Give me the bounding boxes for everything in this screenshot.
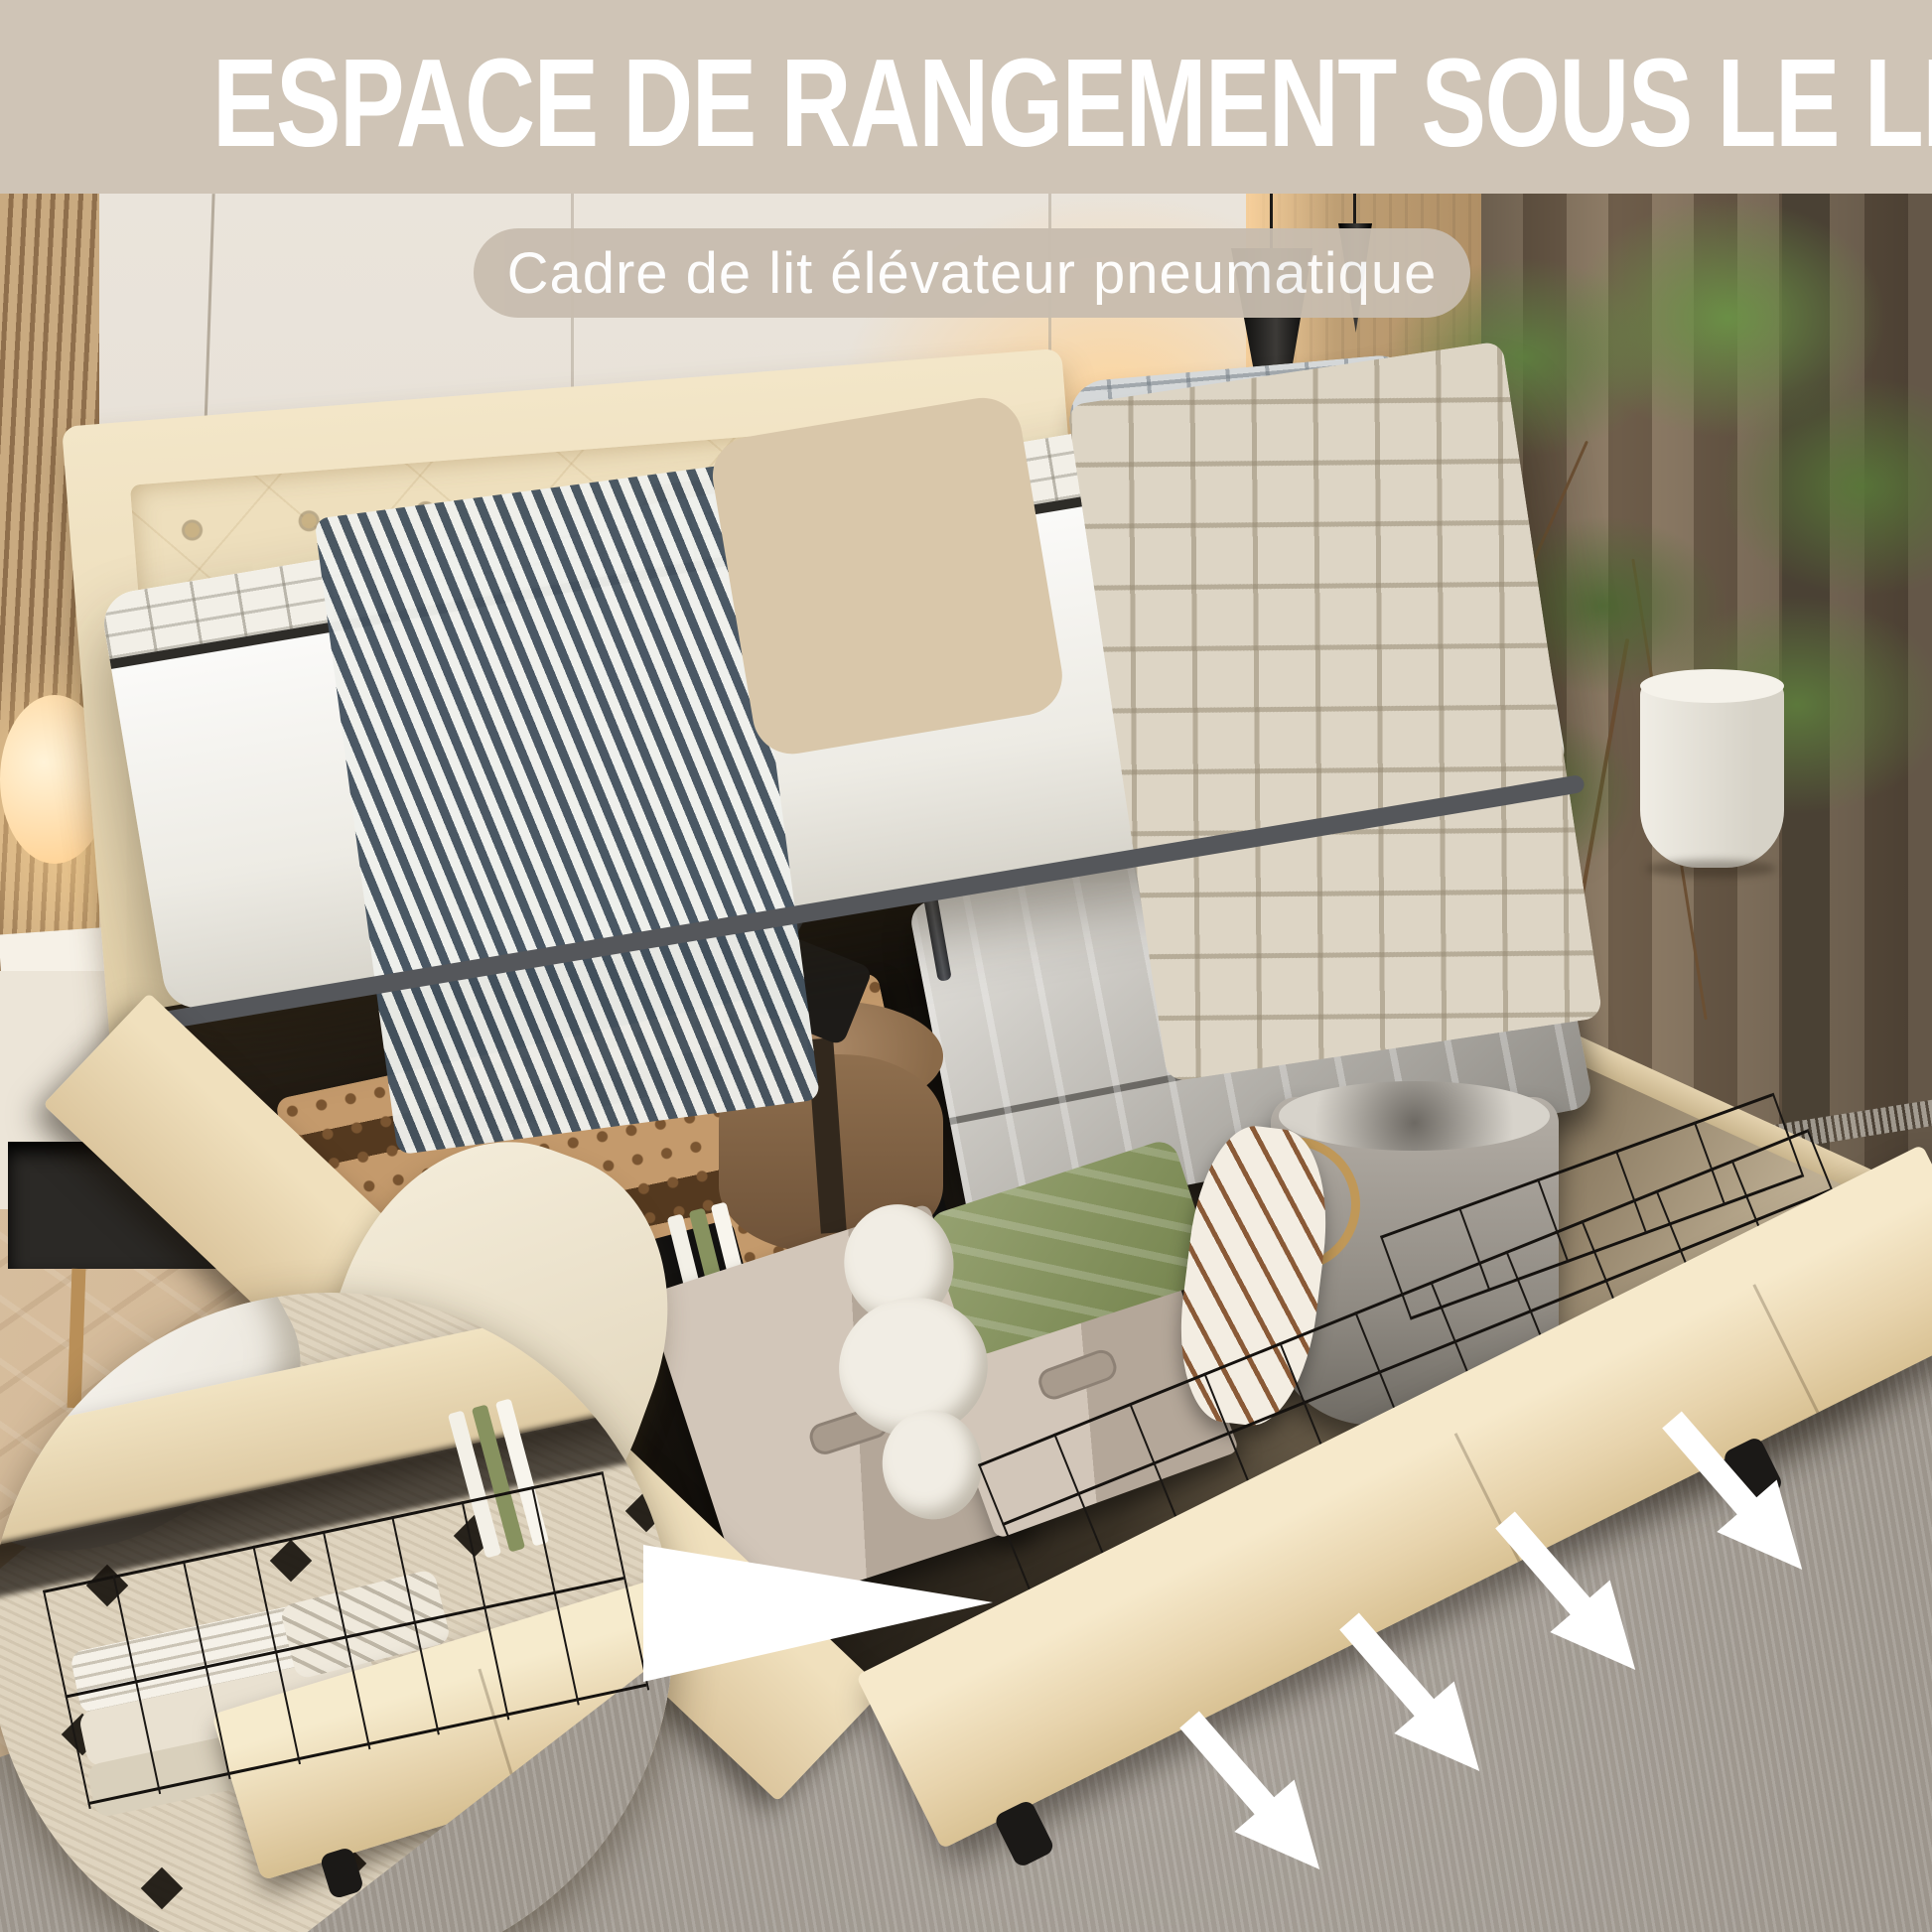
corner-seam xyxy=(1752,1284,1819,1413)
knit-blanket xyxy=(707,392,1068,759)
subtitle: Cadre de lit élévateur pneumatique xyxy=(507,240,1438,307)
inset-drawer-foot xyxy=(320,1846,365,1899)
subtitle-pill: Cadre de lit élévateur pneumatique xyxy=(474,228,1470,318)
basket-bar xyxy=(1615,1150,1648,1234)
basket-bar xyxy=(1458,1207,1491,1292)
drawer-seam xyxy=(1454,1433,1521,1562)
basket-bar xyxy=(1129,1403,1182,1533)
basket-bar xyxy=(1053,1434,1107,1564)
cube-handle xyxy=(1035,1346,1120,1403)
planter-stool xyxy=(1640,681,1784,868)
headline-band: ESPACE DE RANGEMENT SOUS LE LIT xyxy=(0,0,1932,194)
detail-inset-circle xyxy=(0,1293,673,1932)
basket-bar xyxy=(43,1590,91,1809)
basket-bar xyxy=(1537,1178,1570,1263)
page-title: ESPACE DE RANGEMENT SOUS LE LIT xyxy=(212,0,1720,200)
basket-bar xyxy=(1694,1121,1726,1205)
product-image: Dream Big xyxy=(0,0,1932,1932)
rug-dot xyxy=(141,1867,183,1909)
